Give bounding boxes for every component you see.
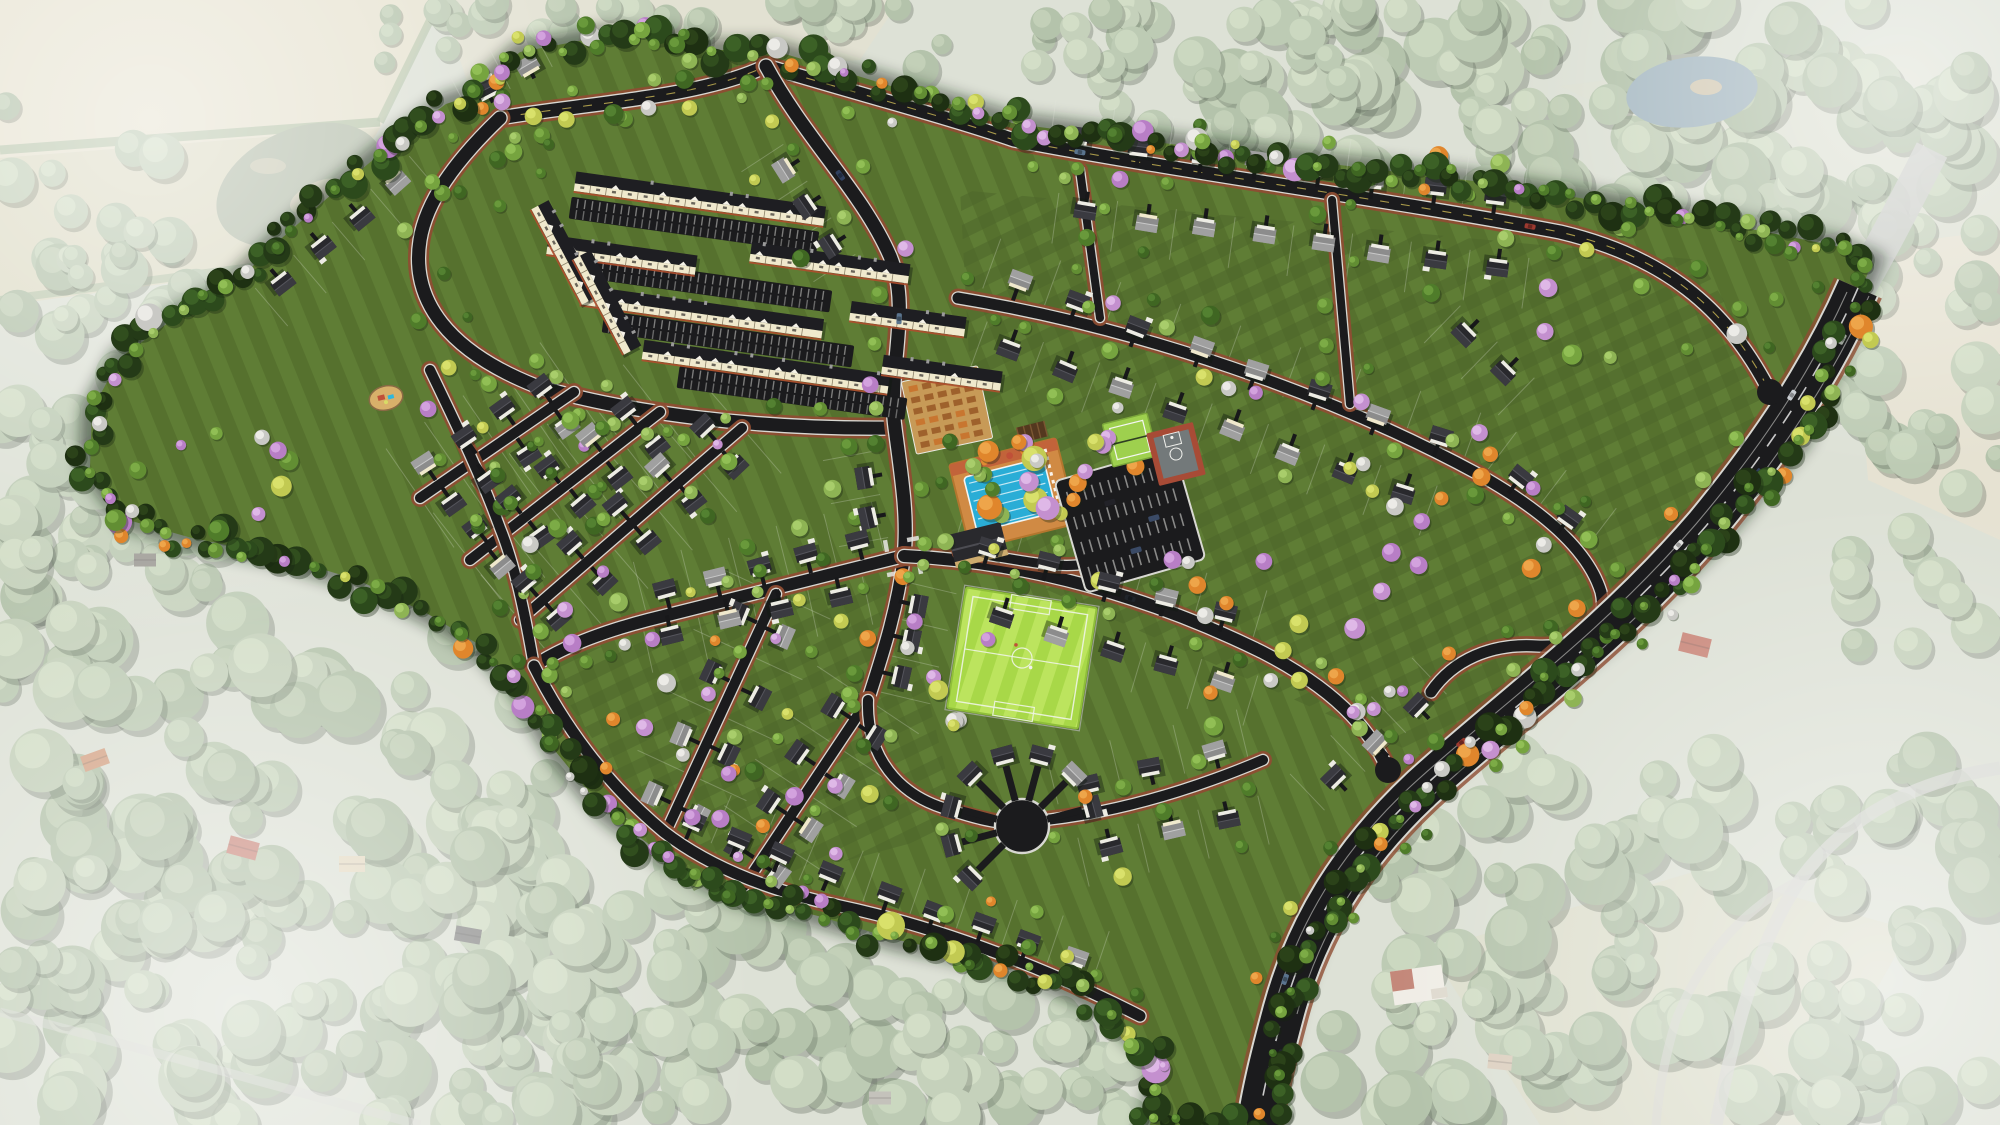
master-plan-rendering: Aerial master-plan rendering of a reside… <box>0 0 2000 1125</box>
tree-crown <box>1694 202 1709 217</box>
tree-crown <box>904 572 910 578</box>
tree-crown <box>663 427 669 433</box>
tree-crown <box>550 371 558 379</box>
tree-crown <box>938 534 947 543</box>
tree-crown <box>966 830 973 837</box>
tree-crown <box>1050 126 1062 138</box>
tree-crown <box>472 65 482 75</box>
tree-crown <box>1162 178 1169 185</box>
tree-crown <box>848 700 856 708</box>
chimney <box>810 249 814 253</box>
tree-crown <box>1780 222 1790 232</box>
car-glass <box>1077 150 1082 155</box>
garage-wing <box>1484 275 1492 280</box>
tree-crown <box>1746 235 1756 245</box>
tree-crown <box>1250 387 1258 395</box>
chimney <box>650 181 654 185</box>
tree-crown <box>1761 212 1773 224</box>
tree-crown <box>768 39 780 51</box>
tree-crown <box>1657 199 1672 214</box>
tree-crown <box>766 115 774 123</box>
chimney <box>926 359 930 363</box>
chimney <box>942 312 946 316</box>
tree-crown <box>1861 301 1873 313</box>
tree-crown <box>1392 155 1404 167</box>
tree-crown <box>1061 951 1069 959</box>
tree-crown <box>550 520 560 530</box>
tree-crown <box>1104 608 1111 615</box>
chimney <box>734 351 738 355</box>
tree-crown <box>482 377 491 386</box>
tree-crown <box>1028 162 1034 168</box>
tree-crown <box>421 402 430 411</box>
tree-crown <box>1780 443 1794 457</box>
tree-crown <box>1403 171 1413 181</box>
tree-crown <box>1764 343 1770 349</box>
tree-crown <box>639 477 647 485</box>
tree-crown <box>1502 626 1509 633</box>
tree-crown <box>686 810 695 819</box>
chimney <box>910 357 914 361</box>
tree-crown <box>918 538 926 546</box>
tree-crown <box>1423 285 1433 295</box>
tree-crown <box>1100 204 1106 210</box>
tree-crown <box>471 515 478 522</box>
tree-crown <box>722 576 729 583</box>
tree-crown <box>611 594 621 604</box>
tree-crown <box>1646 186 1662 202</box>
tree-crown <box>870 402 878 410</box>
tree-crown <box>513 32 520 39</box>
tree-crown <box>734 852 740 858</box>
tree-crown <box>762 78 769 85</box>
tree-crown <box>548 658 555 665</box>
tree-crown <box>993 113 1003 123</box>
tree-crown <box>1222 382 1230 390</box>
tree-crown <box>959 561 966 568</box>
tree-crown <box>1447 435 1455 443</box>
tree-crown <box>1190 638 1197 645</box>
tree-crown <box>793 251 803 261</box>
house <box>1249 221 1277 245</box>
tree-crown <box>734 646 741 653</box>
tree-crown <box>438 268 445 275</box>
tree-crown <box>1346 200 1352 206</box>
tree-crown <box>1424 154 1439 169</box>
tree-crown <box>1072 163 1079 170</box>
chimney <box>730 192 734 196</box>
tree-crown <box>1799 216 1813 230</box>
tree-crown <box>721 414 727 420</box>
tree-crown <box>757 820 765 828</box>
tree-crown <box>815 403 823 411</box>
tree-crown <box>606 651 613 658</box>
tree-crown <box>1691 261 1701 271</box>
house <box>1308 229 1336 253</box>
tree-crown <box>858 583 864 589</box>
highway-junction <box>1375 757 1401 783</box>
tree-crown <box>642 428 649 435</box>
tree-crown <box>1219 158 1229 168</box>
tree-crown <box>1317 658 1323 664</box>
tree-crown <box>1265 674 1273 682</box>
tree-crown <box>586 518 596 528</box>
tree-crown <box>1049 832 1056 839</box>
tree-crown <box>835 615 843 623</box>
tree-crown <box>1279 470 1287 478</box>
tree-crown <box>1356 694 1363 701</box>
tree-crown <box>863 60 871 68</box>
tree-crown <box>683 101 692 110</box>
tree-crown <box>1531 194 1540 203</box>
tree-crown <box>933 95 943 105</box>
tree-crown <box>792 521 801 530</box>
tree-crown <box>1297 155 1313 171</box>
tree-crown <box>1116 780 1125 789</box>
tree-crown <box>1079 791 1087 799</box>
chimney <box>942 361 946 365</box>
tree-crown <box>1038 131 1046 139</box>
tree-crown <box>442 361 451 370</box>
house <box>1070 197 1098 221</box>
tree-crown <box>842 688 851 697</box>
tree-crown <box>678 434 685 441</box>
tree-crown <box>1581 496 1587 502</box>
tree-crown <box>788 144 795 151</box>
chimney <box>688 299 692 303</box>
tree-crown <box>1011 570 1017 576</box>
tree-crown <box>829 58 840 69</box>
tree-crown <box>885 730 892 737</box>
tree-crown <box>825 481 835 491</box>
tree-crown <box>757 856 765 864</box>
house <box>1363 240 1392 264</box>
tree-crown <box>1364 364 1370 370</box>
tree-crown <box>829 779 837 787</box>
tree-crown <box>1194 119 1201 126</box>
tree-crown <box>1733 302 1742 311</box>
chimney <box>877 371 881 375</box>
tree-crown <box>938 907 947 916</box>
tree-crown <box>982 633 990 641</box>
tree-crown <box>1468 488 1478 498</box>
tree-crown <box>580 656 587 663</box>
tree-crown <box>794 595 801 602</box>
tree-crown <box>535 437 541 443</box>
tree-crown <box>589 485 597 493</box>
tree-crown <box>1063 595 1071 603</box>
chimney <box>745 194 749 198</box>
tree-crown <box>893 77 908 92</box>
tree-crown <box>1320 339 1328 347</box>
tree-crown <box>1013 579 1022 588</box>
tree-crown <box>505 497 513 505</box>
tree-crown <box>646 633 654 641</box>
house <box>1131 209 1159 233</box>
tree-crown <box>908 615 917 624</box>
tree-crown <box>969 95 978 104</box>
tree-crown <box>534 624 543 633</box>
house <box>1188 213 1216 237</box>
tree-crown <box>1355 395 1364 404</box>
tree-crown <box>884 796 892 804</box>
tree-crown <box>1567 202 1577 212</box>
tree-crown <box>1601 204 1617 220</box>
tree-crown <box>899 242 908 251</box>
tree-crown <box>1323 137 1330 144</box>
tree-crown <box>1503 513 1510 520</box>
tree-crown <box>535 128 544 137</box>
tree-crown <box>478 423 485 430</box>
chimney <box>704 301 708 305</box>
tree-crown <box>677 749 685 757</box>
tree-crown <box>1031 906 1039 914</box>
tree-crown <box>1353 721 1362 730</box>
tree-crown <box>962 273 969 280</box>
tree-crown <box>598 482 604 488</box>
tree-crown <box>915 483 923 491</box>
tree-crown <box>1107 296 1116 305</box>
tree-crown <box>1499 231 1508 240</box>
tree-crown <box>1318 299 1327 308</box>
car-glass <box>897 316 901 321</box>
tree-crown <box>989 544 995 550</box>
tree-crown <box>728 730 737 739</box>
chimney <box>873 258 877 262</box>
tree-crown <box>1113 403 1119 409</box>
tree-crown <box>740 540 749 549</box>
tree-crown <box>715 669 721 675</box>
highway-junction <box>1757 379 1783 405</box>
tree-crown <box>803 875 809 881</box>
tree-crown <box>1131 989 1139 997</box>
tree-crown <box>1822 238 1830 246</box>
tree-crown <box>1236 841 1243 848</box>
tree-crown <box>558 603 567 612</box>
tree-crown <box>753 587 760 594</box>
tree-crown <box>411 314 420 323</box>
tree-crown <box>806 646 813 653</box>
chimney <box>591 239 595 243</box>
tree-crown <box>435 454 442 461</box>
tree-crown <box>1022 940 1031 949</box>
tree-crown <box>1554 503 1561 510</box>
tree-crown <box>490 462 496 468</box>
tree-crown <box>1366 161 1379 174</box>
tree-crown <box>523 537 533 547</box>
tree-crown <box>872 287 881 296</box>
tree-crown <box>1611 563 1620 572</box>
car <box>896 313 902 324</box>
tree-crown <box>801 37 817 53</box>
tree-crown <box>1149 134 1159 144</box>
chimney <box>672 296 676 300</box>
tree-crown <box>546 468 553 475</box>
tree-crown <box>746 763 756 773</box>
tree-crown <box>1581 532 1591 542</box>
tree-crown <box>1316 372 1324 380</box>
tree-crown <box>1165 147 1174 156</box>
chimney <box>926 310 930 314</box>
tree-crown <box>563 413 573 423</box>
tree-crown <box>868 436 878 446</box>
tree-crown <box>1060 173 1067 180</box>
tree-crown <box>1054 545 1061 552</box>
tree-crown <box>1248 155 1259 166</box>
tree-crown <box>1634 279 1643 288</box>
tree-crown <box>857 739 866 748</box>
tree-crown <box>830 848 837 855</box>
tree-crown <box>751 36 763 48</box>
tree-crown <box>1385 730 1393 738</box>
tree-crown <box>1243 783 1251 791</box>
tree-crown <box>1234 654 1242 662</box>
aerial-rendering-canvas: Aerial master-plan rendering of a reside… <box>0 0 2000 1125</box>
chimney <box>858 255 862 259</box>
tree-crown <box>1113 172 1122 181</box>
tree-crown <box>649 74 656 81</box>
chimney <box>763 242 767 246</box>
chimney <box>607 241 611 245</box>
tree-crown <box>817 553 825 561</box>
tree-crown <box>987 897 993 903</box>
tree-crown <box>1452 182 1463 193</box>
tree-crown <box>463 313 469 319</box>
chimney <box>656 294 660 298</box>
tree-crown <box>1083 123 1094 134</box>
chimney <box>750 353 754 357</box>
tree-crown <box>726 36 742 52</box>
tree-crown <box>750 175 756 181</box>
tree-crown <box>722 455 731 464</box>
tree-crown <box>918 560 924 566</box>
chimney <box>671 342 675 346</box>
tree-crown <box>888 118 894 124</box>
tree-crown <box>842 107 849 114</box>
tree-crown <box>741 76 750 85</box>
tree-crown <box>561 687 567 693</box>
tree-crown <box>608 418 616 426</box>
tree-crown <box>528 442 534 448</box>
tree-crown <box>686 588 692 594</box>
tree-crown <box>862 786 872 796</box>
tree-crown <box>773 734 779 740</box>
tree-crown <box>737 94 743 100</box>
tree-crown <box>863 378 872 387</box>
tree-crown <box>847 666 856 675</box>
tree-crown <box>1205 718 1216 729</box>
tree-crown <box>1134 122 1146 134</box>
tree-crown <box>470 370 476 376</box>
tree-crown <box>842 439 851 448</box>
tree-crown <box>1731 223 1740 232</box>
tree-crown <box>530 355 538 363</box>
tree-crown <box>1712 505 1725 518</box>
tree-crown <box>1139 247 1145 253</box>
tree-crown <box>838 211 846 219</box>
tree-crown <box>857 160 865 168</box>
tree-crown <box>1197 370 1206 379</box>
tree-crown <box>1080 230 1089 239</box>
tree-crown <box>454 186 461 193</box>
tree-crown <box>602 380 609 387</box>
tree-crown <box>1148 294 1155 301</box>
tree-crown <box>1851 316 1864 329</box>
tree-crown <box>493 601 502 610</box>
tree-crown <box>1160 321 1169 330</box>
tree-crown <box>1072 264 1078 270</box>
tree-crown <box>491 469 499 477</box>
tree-crown <box>1150 578 1158 586</box>
tree-crown <box>596 422 604 430</box>
tree-crown <box>1192 755 1200 763</box>
tree-crown <box>767 399 776 408</box>
tree-crown <box>1048 389 1057 398</box>
tree-crown <box>1202 307 1213 318</box>
tree-crown <box>991 315 997 321</box>
tree-crown <box>810 806 816 812</box>
tree-crown <box>449 133 455 139</box>
tree-crown <box>568 86 574 92</box>
tree-crown <box>766 876 773 883</box>
chimney <box>829 364 833 368</box>
tree-crown <box>612 22 628 38</box>
chimney <box>687 344 691 348</box>
tree-crown <box>1716 204 1731 219</box>
tree-crown <box>513 655 521 663</box>
chimney <box>782 358 786 362</box>
tree-crown <box>771 634 777 640</box>
tree-crown <box>598 513 606 521</box>
tree-crown <box>1103 343 1112 352</box>
car-glass <box>1528 224 1533 229</box>
tree-crown <box>1419 184 1425 190</box>
tree-crown <box>598 566 605 573</box>
tree-crown <box>398 224 407 233</box>
tree-crown <box>701 509 709 517</box>
tree-crown <box>1310 207 1320 217</box>
tree-crown <box>1020 322 1027 329</box>
tree-crown <box>869 338 877 346</box>
chimney <box>641 292 645 296</box>
tree-crown <box>1156 804 1166 814</box>
tree-crown <box>1083 301 1090 308</box>
tree-crown <box>527 565 536 574</box>
tree-crown <box>1443 648 1451 656</box>
tree-crown <box>1737 496 1748 507</box>
tree-crown <box>1349 257 1355 263</box>
tree-crown <box>1388 444 1397 453</box>
tree-crown <box>861 631 870 640</box>
tree-crown <box>936 823 943 830</box>
tree-crown <box>685 487 692 494</box>
tree-crown <box>1115 869 1125 879</box>
tree-crown <box>1492 155 1503 166</box>
tree-crown <box>1544 621 1552 629</box>
tree-crown <box>1547 246 1555 254</box>
tree-crown <box>1824 322 1837 335</box>
tree-crown <box>1051 536 1058 543</box>
tree-crown <box>754 565 761 572</box>
tree-crown <box>1398 686 1404 692</box>
tree-crown <box>713 440 719 446</box>
tree-crown <box>564 635 574 645</box>
